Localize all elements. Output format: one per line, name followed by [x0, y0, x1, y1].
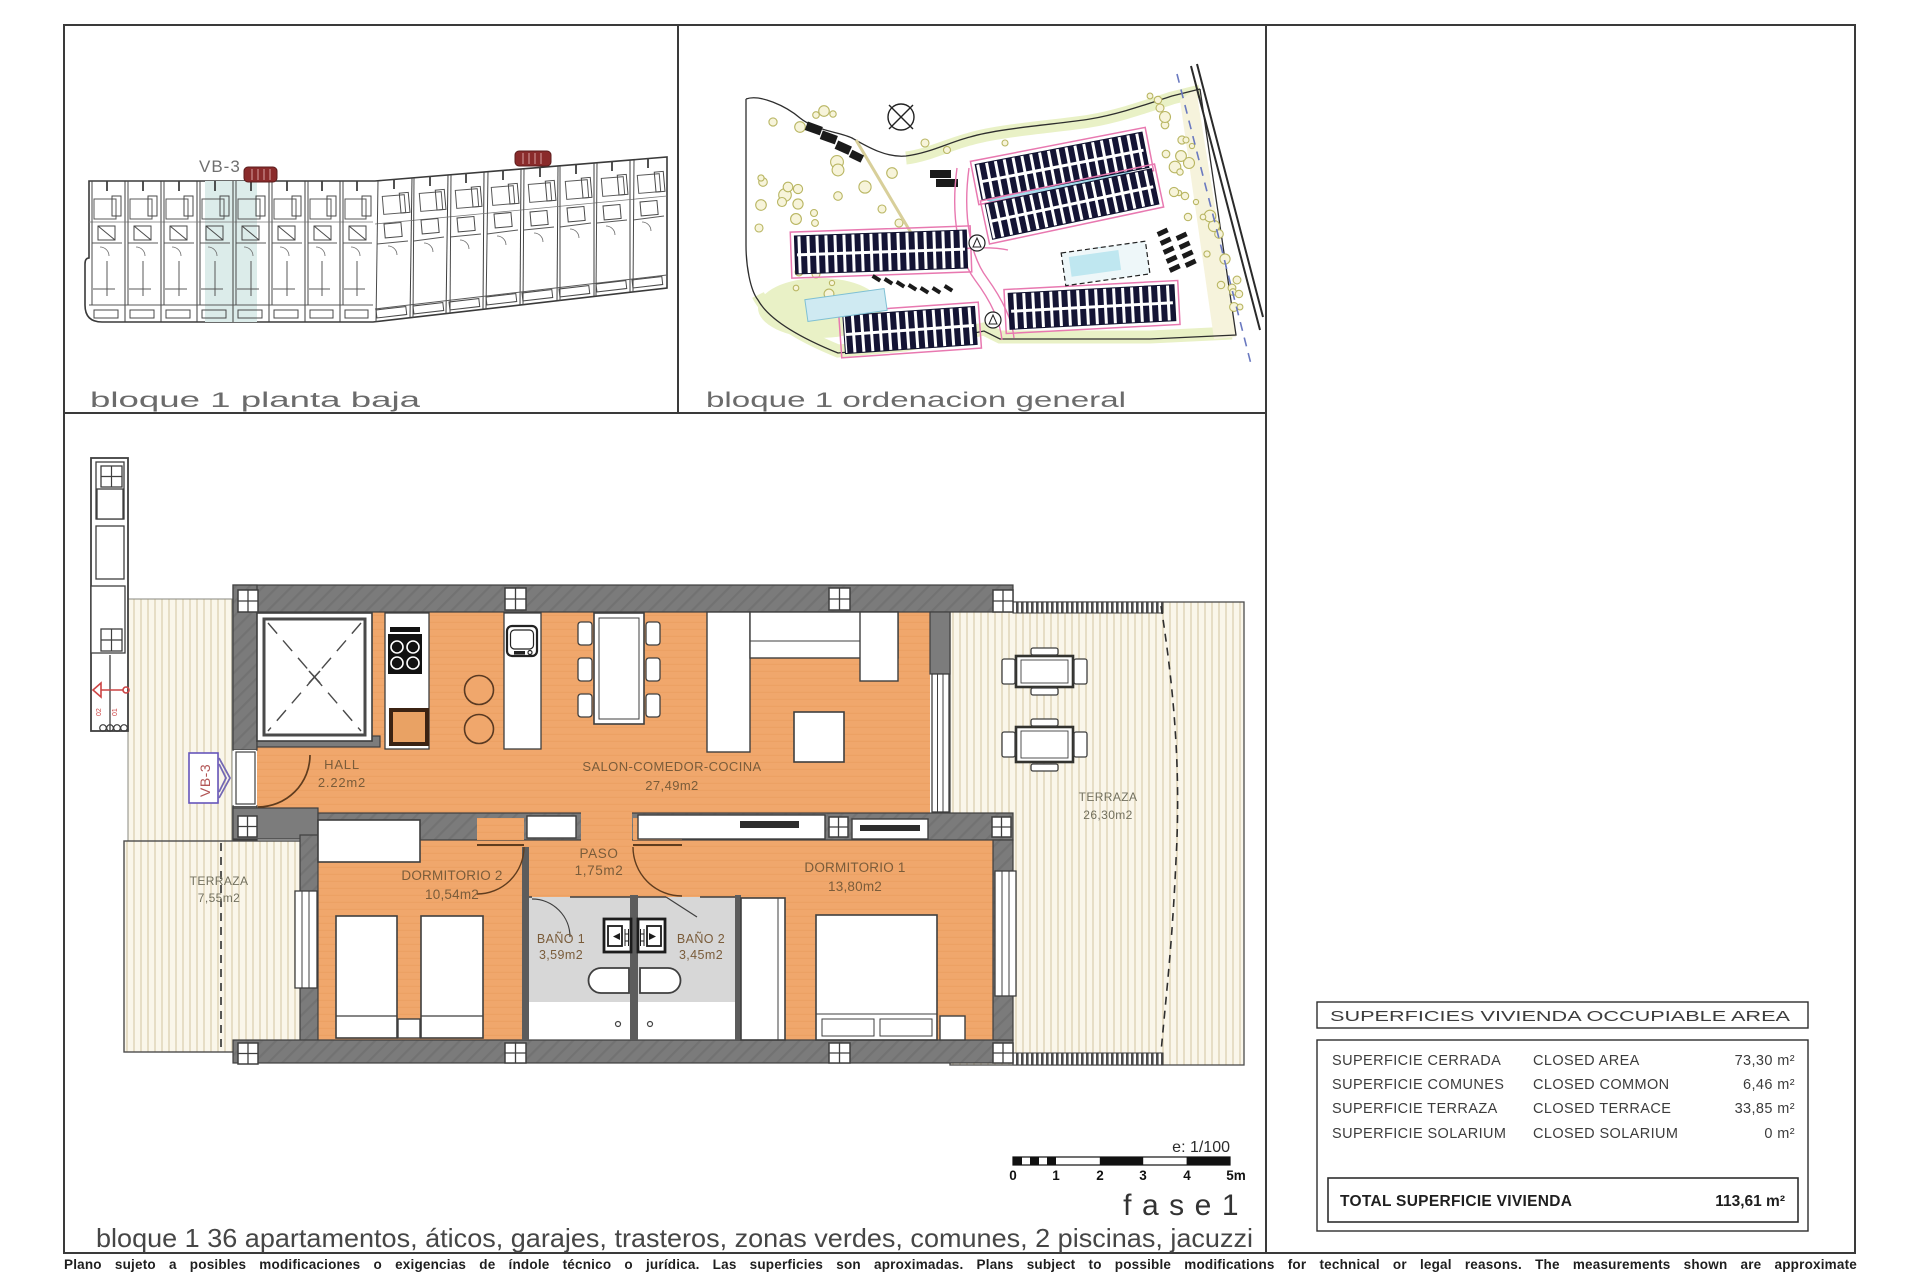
svg-text:3: 3 — [1139, 1168, 1147, 1183]
svg-text:VB-3: VB-3 — [197, 764, 213, 797]
svg-text:CLOSED SOLARIUM: CLOSED SOLARIUM — [1533, 1126, 1678, 1142]
svg-text:2: 2 — [1096, 1168, 1104, 1183]
svg-text:13,80m2: 13,80m2 — [828, 879, 882, 894]
svg-text:3,45m2: 3,45m2 — [679, 948, 723, 962]
svg-text:1,75m2: 1,75m2 — [575, 863, 624, 878]
svg-text:CLOSED TERRACE: CLOSED TERRACE — [1533, 1101, 1671, 1117]
svg-text:VB-3: VB-3 — [199, 157, 241, 176]
svg-text:SUPERFICIE CERRADA: SUPERFICIE CERRADA — [1332, 1053, 1501, 1069]
svg-text:1: 1 — [1052, 1168, 1060, 1183]
svg-text:bloque 1 planta baja: bloque 1 planta baja — [90, 389, 421, 412]
svg-text:02: 02 — [96, 708, 103, 716]
svg-text:e: 1/100: e: 1/100 — [1172, 1139, 1230, 1156]
svg-text:6,46 m²: 6,46 m² — [1743, 1077, 1795, 1093]
svg-text:SUPERFICIES VIVIENDA OCCUPIA: SUPERFICIES VIVIENDA OCCUPIABLE AREA — [1330, 1009, 1790, 1025]
svg-text:bloque 1 ordenacion general: bloque 1 ordenacion general — [706, 389, 1126, 412]
svg-text:PASO: PASO — [580, 846, 619, 861]
svg-text:4: 4 — [1183, 1168, 1191, 1183]
svg-text:HALL: HALL — [324, 757, 360, 772]
svg-text:TERRAZA: TERRAZA — [1079, 790, 1138, 804]
svg-text:0: 0 — [1009, 1168, 1017, 1183]
svg-text:10,54m2: 10,54m2 — [425, 887, 479, 902]
svg-text:5m: 5m — [1226, 1168, 1246, 1183]
svg-text:SUPERFICIE TERRAZA: SUPERFICIE TERRAZA — [1332, 1101, 1498, 1117]
svg-text:BAÑO 1: BAÑO 1 — [537, 932, 585, 946]
svg-text:DORMITORIO 2: DORMITORIO 2 — [401, 868, 502, 883]
svg-text:SALON-COMEDOR-COCINA: SALON-COMEDOR-COCINA — [582, 759, 761, 774]
svg-text:01: 01 — [112, 708, 119, 716]
svg-text:TOTAL SUPERFICIE VIVIENDA: TOTAL SUPERFICIE VIVIENDA — [1340, 1193, 1572, 1210]
svg-text:SUPERFICIE SOLARIUM: SUPERFICIE SOLARIUM — [1332, 1126, 1506, 1142]
svg-text:DORMITORIO 1: DORMITORIO 1 — [804, 860, 905, 875]
svg-text:73,30 m²: 73,30 m² — [1735, 1053, 1795, 1069]
svg-text:27,49m2: 27,49m2 — [645, 778, 698, 793]
svg-text:2.22m2: 2.22m2 — [318, 775, 366, 790]
svg-text:3,59m2: 3,59m2 — [539, 948, 583, 962]
svg-text:SUPERFICIE COMUNES: SUPERFICIE COMUNES — [1332, 1077, 1504, 1093]
svg-text:26,30m2: 26,30m2 — [1083, 808, 1133, 822]
svg-text:CLOSED COMMON: CLOSED COMMON — [1533, 1077, 1670, 1093]
svg-text:113,61 m²: 113,61 m² — [1715, 1193, 1785, 1210]
svg-text:7,55m2: 7,55m2 — [198, 891, 240, 905]
svg-text:0 m²: 0 m² — [1764, 1126, 1795, 1142]
svg-text:BAÑO 2: BAÑO 2 — [677, 932, 725, 946]
svg-text:CLOSED AREA: CLOSED AREA — [1533, 1053, 1640, 1069]
svg-text:bloque 1 36 apartamentos, át: bloque 1 36 apartamentos, áticos, garaje… — [96, 1223, 1253, 1253]
svg-text:33,85 m²: 33,85 m² — [1735, 1101, 1795, 1117]
svg-text:fase1: fase1 — [1123, 1189, 1249, 1222]
svg-text:TERRAZA: TERRAZA — [190, 874, 249, 888]
